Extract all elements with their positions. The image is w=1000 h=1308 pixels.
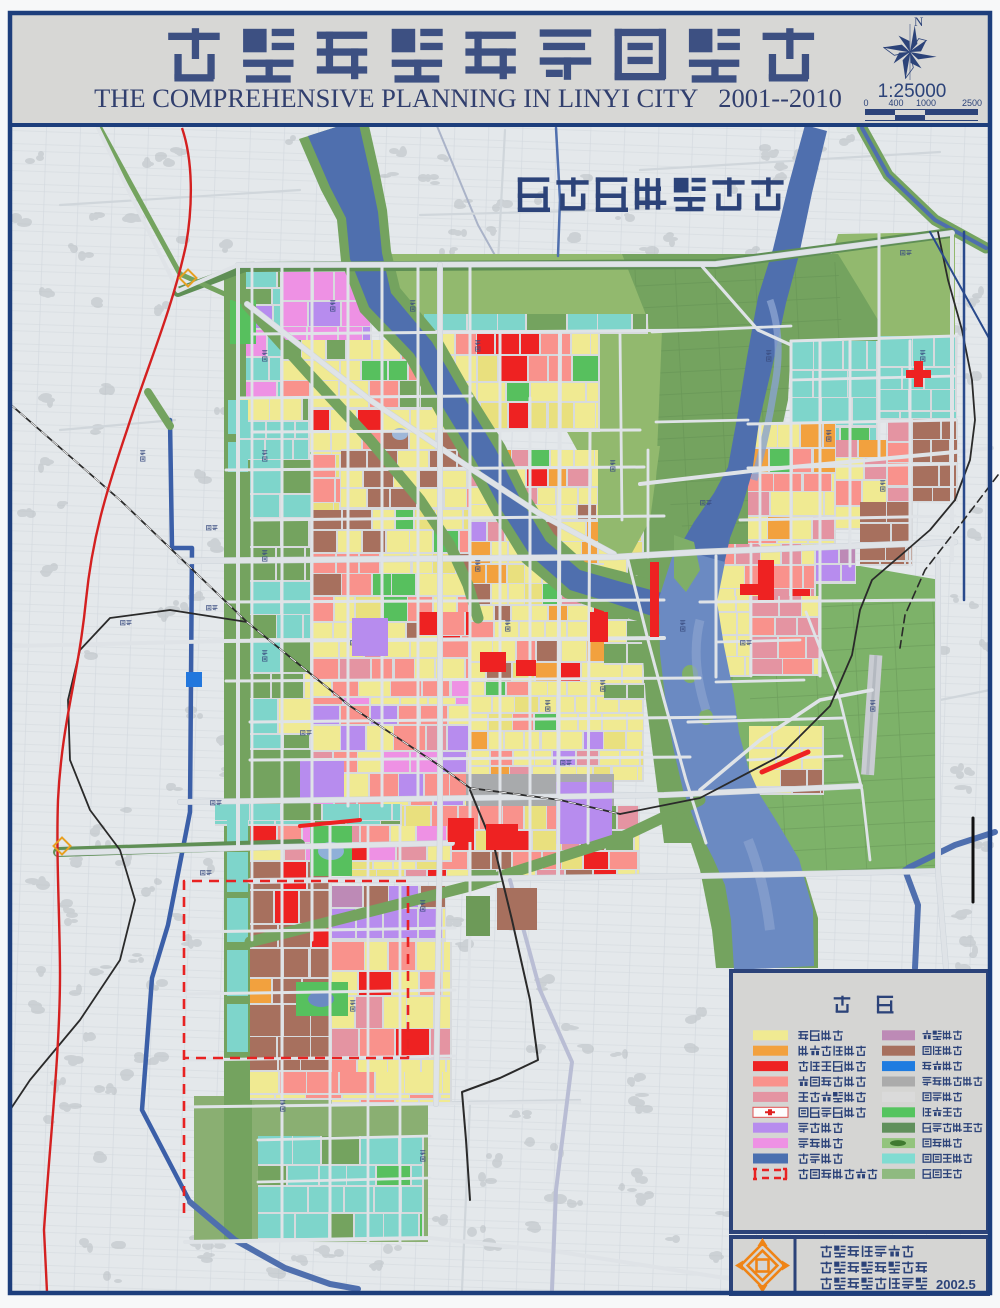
svg-text:N: N — [914, 14, 924, 29]
svg-text:2002.5: 2002.5 — [936, 1277, 976, 1292]
svg-text:1000: 1000 — [916, 98, 936, 108]
svg-text:2500: 2500 — [962, 98, 982, 108]
svg-text:400: 400 — [888, 98, 903, 108]
svg-text:THE COMPREHENSIVE PLANNING IN: THE COMPREHENSIVE PLANNING IN LINYI CITY… — [94, 83, 842, 113]
svg-text:0: 0 — [863, 98, 868, 108]
